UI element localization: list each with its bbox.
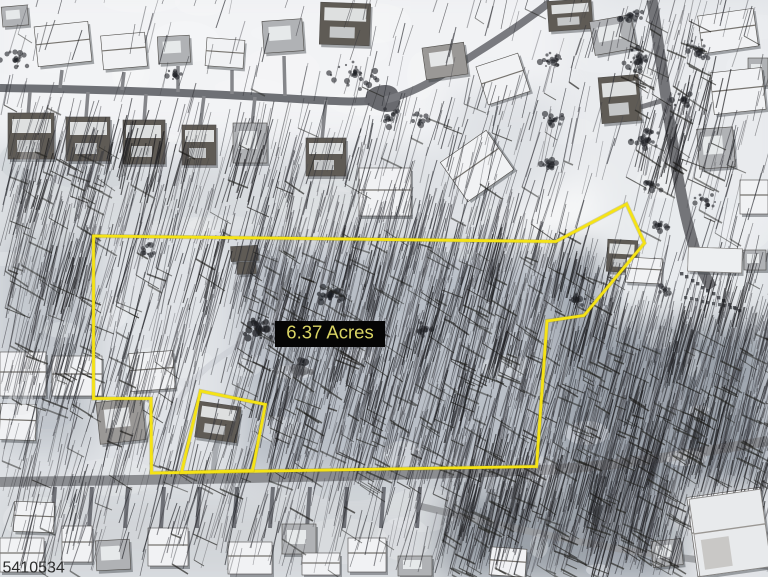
svg-text:5410534: 5410534 [3,560,65,577]
svg-text:6.37 Acres: 6.37 Acres [286,322,373,343]
